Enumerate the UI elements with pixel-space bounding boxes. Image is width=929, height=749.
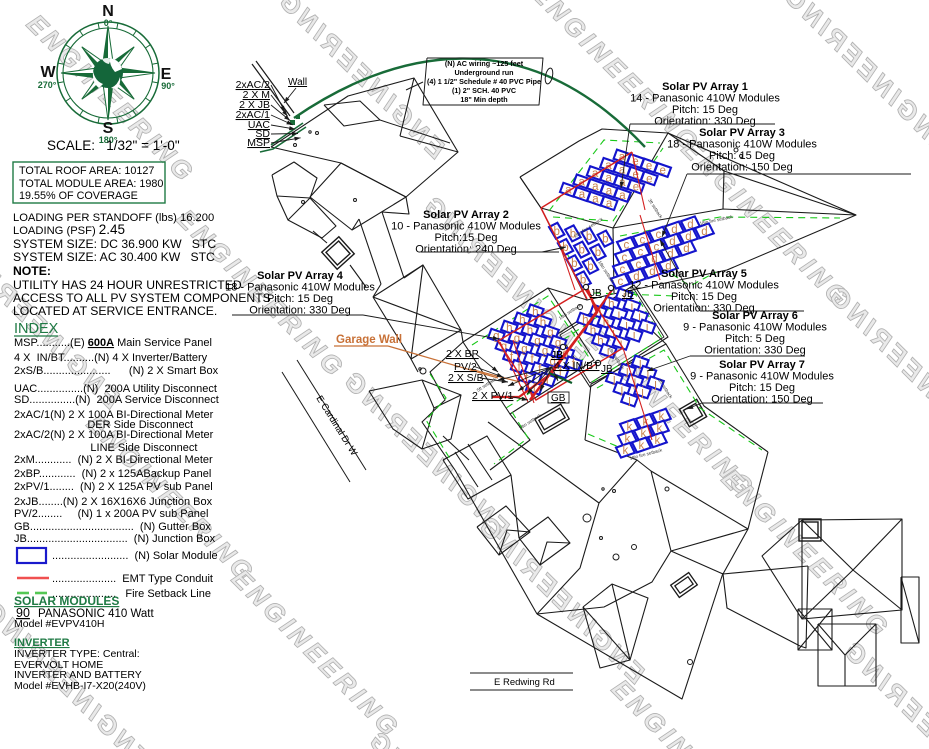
svg-text:a: a bbox=[619, 164, 626, 176]
svg-text:PV/2........ (N) 1 x 200A: PV/2........ (N) 1 x 200A PV sub Panel bbox=[14, 508, 208, 520]
svg-text:12 - Panasonic 410W Modules: 12 - Panasonic 410W Modules bbox=[629, 280, 779, 292]
svg-text:ENGINEERING: ENGINEERING bbox=[226, 563, 407, 744]
svg-text:a: a bbox=[606, 198, 613, 210]
svg-text:ENGINEERING: ENGINEERING bbox=[606, 673, 787, 749]
svg-text:Solar PV Array 3: Solar PV Array 3 bbox=[699, 127, 785, 139]
svg-text:2xM............ (N) 2 X BI-Di: 2xM............ (N) 2 X BI-Directional M… bbox=[14, 454, 213, 466]
svg-text:..................... EMT Typ: ..................... EMT Type Conduit bbox=[52, 573, 213, 585]
svg-text:NOTE:: NOTE: bbox=[13, 264, 51, 278]
svg-text:SD...............(N) 200A Ser: SD...............(N) 200A Service Discon… bbox=[14, 394, 219, 406]
svg-text:b: b bbox=[578, 245, 584, 257]
svg-text:Model #EVHB-I7-X20(240V): Model #EVHB-I7-X20(240V) bbox=[14, 680, 146, 692]
svg-text:SCALE: 1/32" = 1'-0": SCALE: 1/32" = 1'-0" bbox=[47, 138, 180, 153]
svg-text:Pitch: 5 Deg: Pitch: 5 Deg bbox=[725, 333, 785, 345]
svg-text:Orientation: 330 Deg: Orientation: 330 Deg bbox=[654, 116, 756, 128]
svg-text:3ft setback: 3ft setback bbox=[647, 198, 664, 220]
svg-text:j: j bbox=[640, 386, 644, 398]
svg-text:4 X IN/BT: 4 X IN/BT bbox=[554, 360, 600, 372]
svg-text:b: b bbox=[586, 231, 592, 243]
svg-text:GB: GB bbox=[551, 393, 566, 404]
svg-text:Orientation: 150 Deg: Orientation: 150 Deg bbox=[691, 162, 793, 174]
svg-text:(4) 1 1/2" Schedule # 40 PVC P: (4) 1 1/2" Schedule # 40 PVC Pipe bbox=[427, 77, 541, 86]
svg-text:JB............................: JB................................. (N) … bbox=[14, 533, 216, 545]
svg-text:MSP...........(E) 600A Main Se: MSP...........(E) 600A Main Service Pane… bbox=[14, 337, 212, 349]
svg-text:e: e bbox=[633, 182, 639, 194]
svg-text:270°: 270° bbox=[38, 80, 57, 90]
svg-text:a: a bbox=[592, 181, 599, 193]
svg-text:TOTAL ROOF AREA: 10127: TOTAL ROOF AREA: 10127 bbox=[19, 165, 154, 177]
svg-text:......................... (N): ......................... (N) Solar Modu… bbox=[52, 550, 218, 562]
svg-text:ENGINEERING: ENGINEERING bbox=[776, 0, 929, 159]
svg-text:j: j bbox=[653, 378, 657, 390]
svg-text:Pitch: 15 Deg: Pitch: 15 Deg bbox=[709, 150, 775, 162]
svg-text:(N) AC wiring ~125 feet: (N) AC wiring ~125 feet bbox=[445, 59, 524, 68]
svg-text:2 X S/B: 2 X S/B bbox=[448, 372, 484, 384]
svg-text:19.55% OF COVERAGE: 19.55% OF COVERAGE bbox=[19, 190, 138, 202]
svg-text:Pitch: 15 Deg: Pitch: 15 Deg bbox=[672, 104, 738, 116]
svg-text:c: c bbox=[618, 276, 624, 288]
svg-text:d: d bbox=[683, 243, 689, 255]
svg-text:j: j bbox=[646, 368, 650, 380]
svg-text:b: b bbox=[587, 261, 593, 273]
svg-text:LOCATED AT SERVICE ENTRANCE.: LOCATED AT SERVICE ENTRANCE. bbox=[13, 304, 217, 318]
svg-text:2xAC/2(N) 2 X 100A BI-Directio: 2xAC/2(N) 2 X 100A BI-Directional Meter bbox=[14, 429, 214, 441]
svg-text:14 - Panasonic 410W Modules: 14 - Panasonic 410W Modules bbox=[630, 93, 780, 105]
svg-text:j: j bbox=[625, 366, 629, 378]
svg-text:Orientation: 330 Deg: Orientation: 330 Deg bbox=[704, 345, 806, 357]
svg-text:18 - Panasonic 410W Modules: 18 - Panasonic 410W Modules bbox=[225, 282, 375, 294]
svg-text:10 - Panasonic 410W Modules: 10 - Panasonic 410W Modules bbox=[391, 221, 541, 233]
svg-text:TOTAL MODULE AREA: 1980: TOTAL MODULE AREA: 1980 bbox=[19, 178, 163, 190]
svg-text:e: e bbox=[659, 165, 665, 177]
svg-text:Pitch: 15 Deg: Pitch: 15 Deg bbox=[671, 291, 737, 303]
svg-text:SYSTEM SIZE: DC 36.900 KW ST: SYSTEM SIZE: DC 36.900 KW STC bbox=[13, 237, 216, 251]
svg-text:e: e bbox=[646, 161, 652, 173]
svg-text:2xJB........(N) 2 X 16X16X6 Ju: 2xJB........(N) 2 X 16X16X6 Junction Box bbox=[14, 496, 213, 508]
svg-text:e: e bbox=[646, 173, 652, 185]
svg-text:JB: JB bbox=[601, 364, 613, 375]
svg-text:d: d bbox=[649, 266, 655, 278]
svg-text:LOADING (PSF) 2.45: LOADING (PSF) 2.45 bbox=[13, 222, 125, 237]
svg-text:Pitch: 15 Deg: Pitch: 15 Deg bbox=[267, 293, 333, 305]
svg-text:LINE Side Disconnect: LINE Side Disconnect bbox=[14, 442, 197, 454]
svg-text:k: k bbox=[655, 435, 661, 447]
svg-text:9 - Panasonic 410W Modules: 9 - Panasonic 410W Modules bbox=[683, 322, 827, 334]
svg-text:9 - Panasonic 410W Modules: 9 - Panasonic 410W Modules bbox=[690, 371, 834, 383]
svg-text:E Cardinal Dr W: E Cardinal Dr W bbox=[313, 394, 359, 458]
svg-text:Solar PV Array 4: Solar PV Array 4 bbox=[257, 270, 344, 282]
svg-text:Solar PV Array 6: Solar PV Array 6 bbox=[712, 310, 798, 322]
svg-text:Pitch:15 Deg: Pitch:15 Deg bbox=[435, 232, 498, 244]
svg-text:2xPV/1........ (N) 2 X 125A P: 2xPV/1........ (N) 2 X 125A PV sub Panel bbox=[14, 481, 213, 493]
svg-text:j: j bbox=[627, 395, 631, 407]
svg-text:2 X PV/1: 2 X PV/1 bbox=[472, 390, 514, 402]
svg-text:18 - Panasonic 410W Modules: 18 - Panasonic 410W Modules bbox=[667, 139, 817, 151]
svg-text:ENGINEERING: ENGINEERING bbox=[471, 508, 652, 689]
svg-text:Orientation: 240 Deg: Orientation: 240 Deg bbox=[415, 244, 517, 256]
svg-text:a: a bbox=[619, 190, 626, 202]
svg-text:k: k bbox=[623, 445, 629, 457]
svg-text:0°: 0° bbox=[104, 18, 113, 28]
svg-text:i: i bbox=[638, 311, 641, 323]
svg-text:i: i bbox=[633, 330, 636, 342]
svg-text:d: d bbox=[701, 226, 707, 238]
svg-text:j: j bbox=[638, 358, 642, 370]
svg-text:90°: 90° bbox=[161, 81, 175, 91]
svg-text:Pitch: 15 Deg: Pitch: 15 Deg bbox=[729, 382, 795, 394]
svg-text:INDEX: INDEX bbox=[14, 321, 59, 337]
svg-text:j: j bbox=[620, 384, 624, 396]
svg-text:k: k bbox=[639, 440, 645, 452]
svg-text:j: j bbox=[612, 374, 616, 386]
svg-text:GB............................: GB.................................. (N)… bbox=[14, 521, 211, 533]
svg-text:(1) 2" SCH. 40 PVC: (1) 2" SCH. 40 PVC bbox=[452, 86, 516, 95]
svg-text:i: i bbox=[646, 322, 649, 334]
svg-text:JB: JB bbox=[590, 288, 602, 299]
svg-text:Solar PV Array 1: Solar PV Array 1 bbox=[662, 81, 748, 93]
svg-text:b: b bbox=[595, 247, 601, 259]
svg-text:2xBP............ (N) 2 x 125A: 2xBP............ (N) 2 x 125ABackup Pane… bbox=[14, 468, 211, 480]
svg-text:a: a bbox=[605, 173, 612, 185]
svg-text:a: a bbox=[606, 185, 613, 197]
svg-text:Model #EVPV410H: Model #EVPV410H bbox=[14, 618, 104, 630]
svg-text:Wall: Wall bbox=[288, 77, 307, 88]
svg-text:Solar PV Array 5: Solar PV Array 5 bbox=[661, 268, 747, 280]
svg-text:MSP: MSP bbox=[247, 137, 270, 149]
svg-text:Solar PV Array 2: Solar PV Array 2 bbox=[423, 209, 509, 221]
svg-text:ENGINEERING: ENGINEERING bbox=[821, 278, 929, 459]
svg-text:i: i bbox=[618, 309, 621, 321]
svg-text:i: i bbox=[631, 301, 634, 313]
svg-text:4 X IN/BT..........(N) 4 X In: 4 X IN/BT..........(N) 4 X Inverter/Batt… bbox=[14, 352, 208, 364]
svg-text:18" Min depth: 18" Min depth bbox=[460, 95, 507, 104]
svg-text:W: W bbox=[40, 64, 56, 81]
svg-text:Garage Wall: Garage Wall bbox=[336, 334, 402, 346]
svg-text:Solar PV Array 7: Solar PV Array 7 bbox=[719, 359, 805, 371]
svg-text:18in fire setback: 18in fire setback bbox=[699, 214, 733, 226]
svg-text:UTILITY HAS 24 HOUR UNRESTRICT: UTILITY HAS 24 HOUR UNRESTRICTED bbox=[13, 278, 242, 292]
svg-text:18in setback: 18in setback bbox=[597, 260, 616, 285]
svg-text:a: a bbox=[592, 194, 599, 206]
svg-text:SYSTEM SIZE: AC 30.400 KW ST: SYSTEM SIZE: AC 30.400 KW STC bbox=[13, 250, 215, 264]
svg-text:2xS/B......................: 2xS/B...................... (N) 2 X Smar… bbox=[14, 365, 219, 377]
svg-text:2 X BP: 2 X BP bbox=[446, 348, 479, 360]
svg-text:b: b bbox=[602, 234, 608, 246]
svg-text:i: i bbox=[625, 319, 628, 331]
svg-text:Underground run: Underground run bbox=[454, 68, 513, 77]
svg-text:Orientation: 150 Deg: Orientation: 150 Deg bbox=[711, 394, 813, 406]
svg-text:E Redwing Rd: E Redwing Rd bbox=[494, 677, 555, 688]
svg-text:a: a bbox=[579, 189, 586, 201]
